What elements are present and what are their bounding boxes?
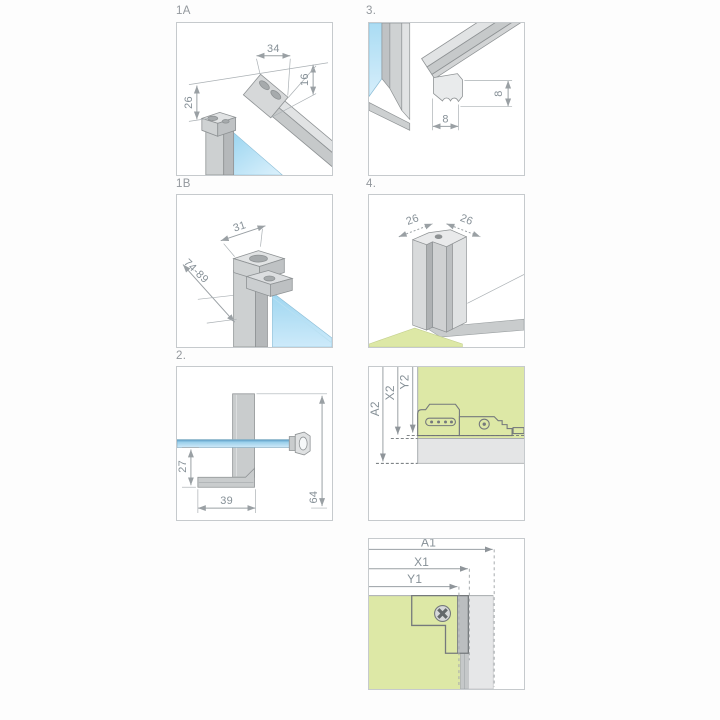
figure-1b-profile-drawing: 31 74-89 (177, 195, 332, 347)
figure-a1-top-view: A1 X1 Y1 (369, 539, 524, 689)
dim-74-89-label: 74-89 (181, 257, 210, 286)
figure-4-corner-post-drawing: 26 26 (369, 195, 524, 347)
dim-26-left-label: 26 (405, 212, 421, 228)
dim-26-label: 26 (183, 96, 195, 109)
door-profile-strip (468, 596, 493, 689)
wall-profile-with-glass (202, 112, 282, 175)
figure-3-seal-drawing: 8 8 (369, 23, 524, 175)
panel-2-label: 2. (176, 350, 186, 362)
panel-2-glass-clamp: 27 39 64 (176, 366, 333, 521)
figure-1a-wall-arm-drawing: 34 16 26 (177, 23, 332, 175)
panel-1b-label: 1B (176, 178, 191, 190)
panel-top-view-a1: A1 X1 Y1 (368, 538, 525, 690)
dim-8-height-label: 8 (493, 90, 505, 96)
panel-top-view-a2: A2 X2 Y2 (368, 366, 525, 521)
dim-x2-label: X2 (383, 385, 397, 400)
phillips-screw-icon (434, 605, 451, 622)
dim-27-label: 27 (177, 460, 189, 473)
seal-cross-section (434, 74, 463, 102)
clamp-bracket-assembly (177, 394, 310, 487)
wall-profile-assembly (234, 251, 332, 347)
dim-8-width-label: 8 (442, 113, 448, 125)
glass-panel (369, 23, 382, 97)
panel-4-corner-post: 26 26 (368, 194, 525, 348)
figure-2-clamp-side-view: 27 39 64 (177, 367, 332, 520)
dim-34-label: 34 (267, 43, 280, 55)
panel-1a-wall-bracket: 34 16 26 (176, 22, 333, 176)
dim-16-label: 16 (299, 73, 311, 86)
dim-39-label: 39 (220, 495, 233, 507)
dim-y2-label: Y2 (398, 374, 412, 389)
dim-a2-label: A2 (369, 401, 382, 416)
panel-3-label: 3. (366, 5, 376, 17)
wall-band (418, 439, 524, 464)
corner-post-profile (413, 230, 467, 332)
dim-y1-label: Y1 (407, 572, 422, 586)
panel-4-label: 4. (366, 178, 376, 190)
door-profile-with-glass (369, 23, 410, 130)
dim-x1-label: X1 (414, 555, 429, 569)
dim-64-label: 64 (308, 491, 320, 504)
seal-strip-bar (422, 23, 524, 101)
dim-26-right-label: 26 (458, 212, 474, 228)
instruction-sheet: 1A 3. 1B 4. 2. (0, 0, 720, 720)
panel-3-seal-profile: 8 8 (368, 22, 525, 176)
figure-a2-top-view: A2 X2 Y2 (369, 367, 524, 520)
bracket-column (233, 394, 255, 477)
dim-a1-label: A1 (421, 539, 436, 549)
panel-1a-label: 1A (176, 5, 191, 17)
panel-1b-wall-profile: 31 74-89 (176, 194, 333, 348)
